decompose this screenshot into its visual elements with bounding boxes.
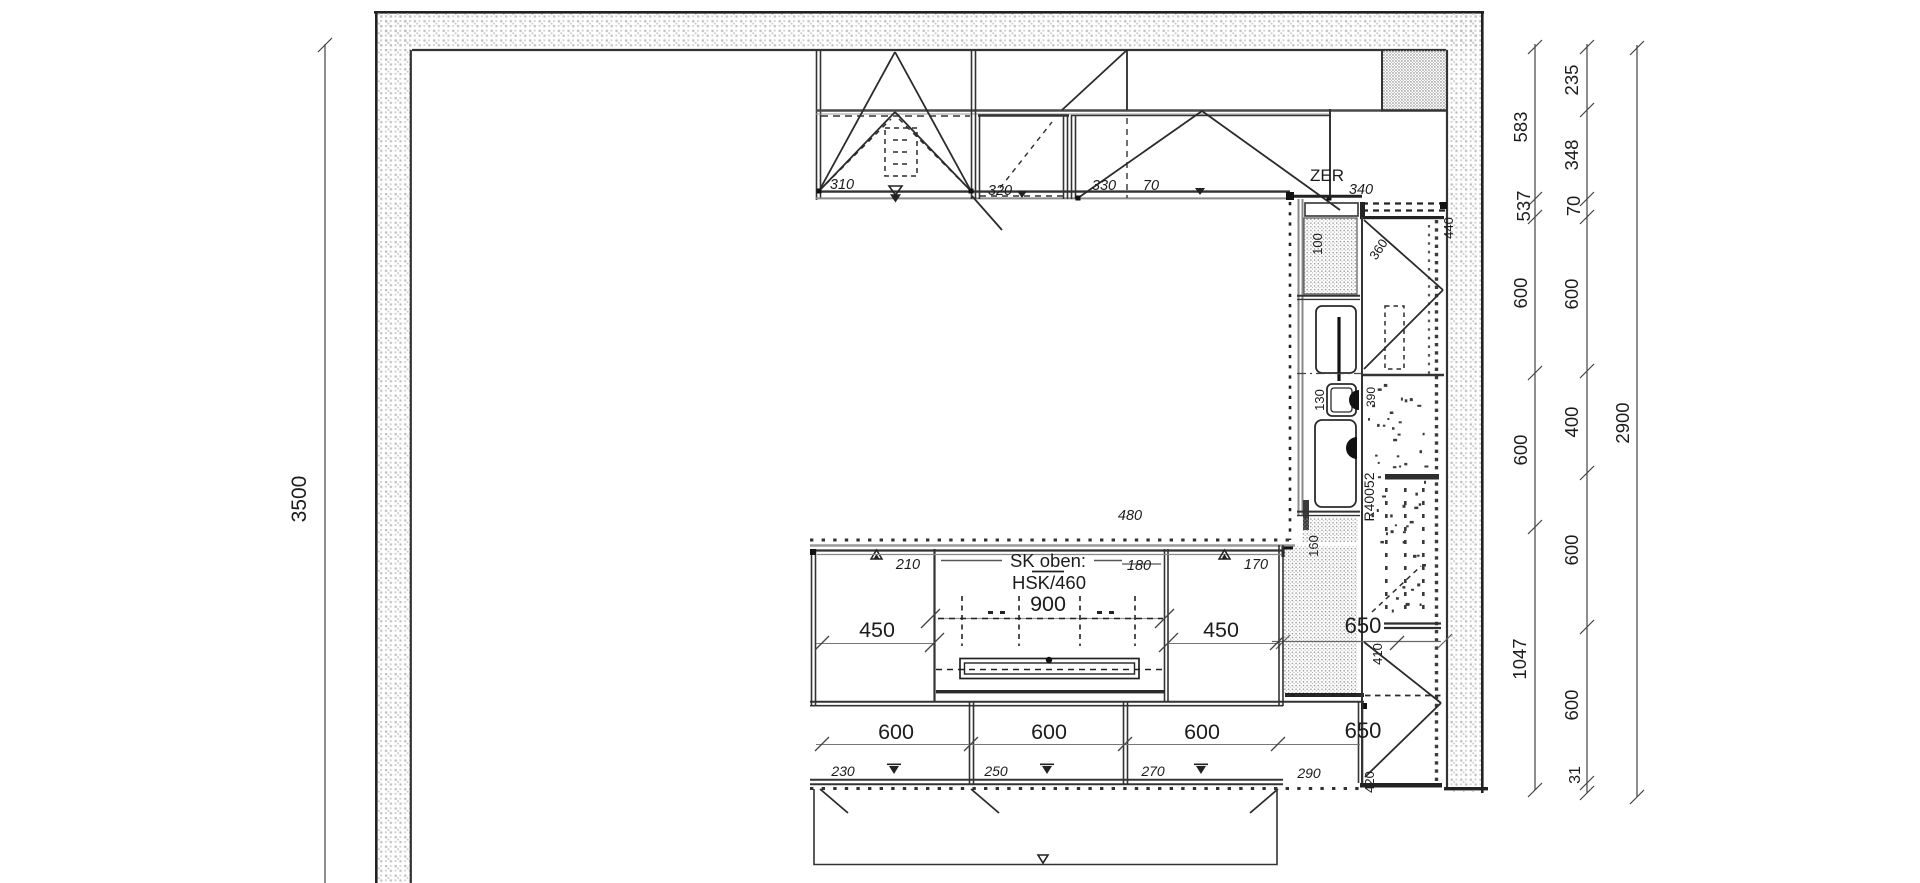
svg-text:450: 450: [859, 618, 895, 642]
svg-text:2900: 2900: [1612, 402, 1633, 443]
svg-text:70: 70: [1143, 178, 1159, 194]
svg-text:320: 320: [988, 183, 1012, 199]
svg-text:130: 130: [1312, 389, 1327, 411]
svg-text:HSK/460: HSK/460: [1012, 572, 1086, 593]
svg-text:310: 310: [830, 177, 854, 193]
svg-text:900: 900: [1030, 592, 1066, 616]
svg-text:420: 420: [1362, 771, 1377, 793]
svg-text:R40052: R40052: [1361, 472, 1377, 521]
svg-text:330: 330: [1092, 178, 1116, 194]
svg-text:600: 600: [1561, 690, 1582, 721]
svg-text:250: 250: [983, 763, 1008, 779]
svg-text:235: 235: [1561, 65, 1582, 96]
svg-text:348: 348: [1561, 140, 1582, 171]
svg-text:400: 400: [1561, 407, 1582, 438]
svg-text:230: 230: [830, 763, 855, 779]
svg-text:ZER: ZER: [1310, 166, 1344, 185]
svg-text:180: 180: [1127, 558, 1151, 574]
svg-text:600: 600: [1184, 720, 1220, 744]
svg-text:3500: 3500: [288, 476, 311, 523]
svg-text:70: 70: [1563, 196, 1584, 217]
svg-text:270: 270: [1140, 763, 1165, 779]
svg-text:31: 31: [1567, 766, 1584, 784]
svg-text:537: 537: [1513, 191, 1534, 222]
svg-text:600: 600: [1510, 278, 1531, 309]
svg-text:650: 650: [1345, 718, 1382, 743]
svg-text:210: 210: [895, 557, 920, 573]
svg-text:600: 600: [1031, 720, 1067, 744]
svg-text:170: 170: [1244, 557, 1268, 573]
svg-text:650: 650: [1345, 613, 1382, 638]
svg-text:1047: 1047: [1509, 638, 1530, 679]
svg-text:600: 600: [1561, 279, 1582, 310]
svg-text:SK oben:: SK oben:: [1010, 550, 1086, 571]
svg-text:600: 600: [878, 720, 914, 744]
svg-text:100: 100: [1310, 233, 1325, 255]
svg-text:390: 390: [1364, 387, 1378, 407]
svg-text:410: 410: [1370, 643, 1385, 665]
svg-text:600: 600: [1510, 435, 1531, 466]
svg-text:440: 440: [1441, 217, 1456, 239]
svg-text:450: 450: [1203, 618, 1239, 642]
svg-text:583: 583: [1510, 112, 1531, 143]
svg-text:600: 600: [1561, 535, 1582, 566]
svg-text:290: 290: [1296, 765, 1321, 781]
svg-text:480: 480: [1118, 508, 1142, 524]
